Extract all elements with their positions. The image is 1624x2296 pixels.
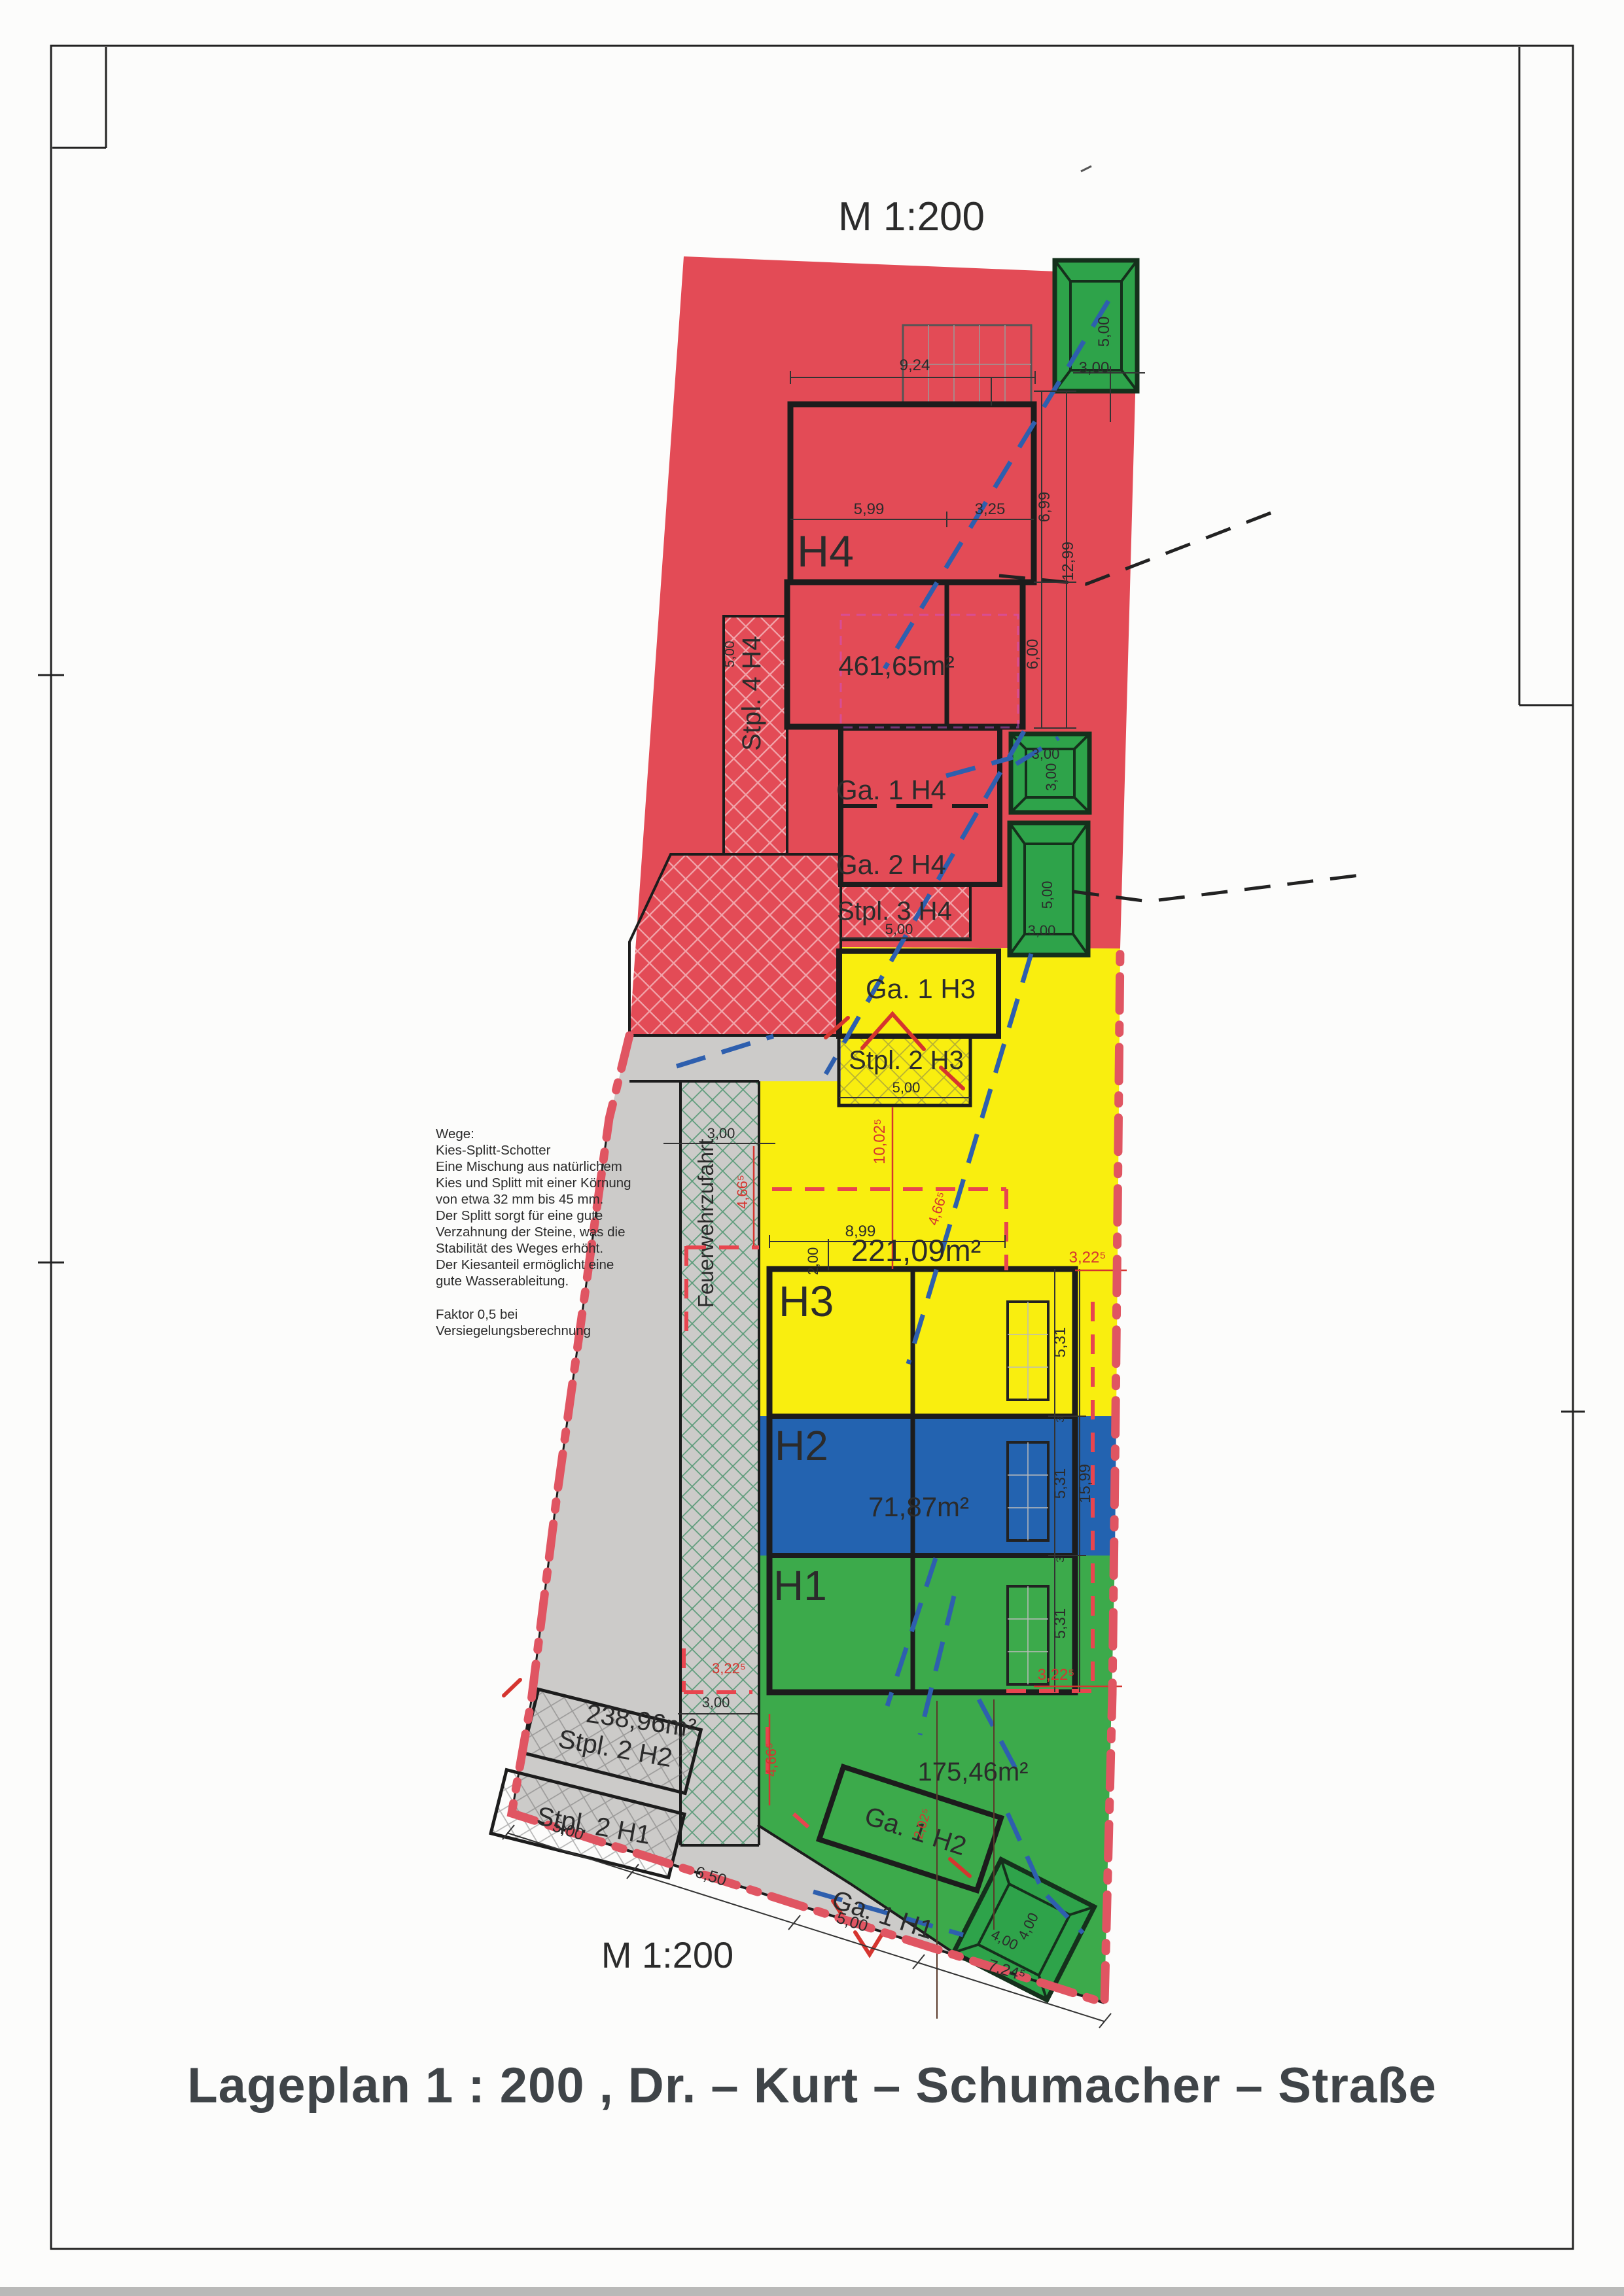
note-line: Eine Mischung aus natürlichem <box>436 1159 622 1174</box>
label-ga2h4: Ga. 2 H4 <box>836 849 946 880</box>
note-line: Kies-Splitt-Schotter <box>436 1143 551 1158</box>
dim-3-22-top: 3,22⁵ <box>1069 1249 1106 1266</box>
dim-3-22-strip: 3,22⁵ <box>712 1660 746 1677</box>
dim-strip-3-00-bottom: 3,00 <box>702 1694 730 1711</box>
note-line: Kies und Splitt mit einer Körnung <box>436 1175 631 1191</box>
dim-tree2-3-00: 3,00 <box>1028 922 1056 939</box>
dim-5-31-a: 5,31 <box>1051 1327 1069 1358</box>
note-line: gute Wasserableitung. <box>436 1274 569 1289</box>
label-feuerwehrzufahrt: Feuerwehrzufahrt <box>694 1139 718 1308</box>
label-h2: H2 <box>775 1422 828 1469</box>
area-h4: 461,65m² <box>838 650 954 681</box>
dim-2-00: 2,00 <box>805 1247 821 1276</box>
page-title: Lageplan 1 : 200 , Dr. – Kurt – Schumach… <box>187 2058 1436 2113</box>
site-plan-drawing: M 1:200 M 1:200 Lageplan 1 : 200 , Dr. –… <box>0 0 1624 2296</box>
dim-15-99: 15,99 <box>1076 1464 1094 1503</box>
area-garden: 175,46m² <box>918 1758 1029 1786</box>
label-stpl4h4: Stpl. 4 H4 <box>737 636 766 751</box>
dim-3-a: 3 <box>1054 1416 1067 1422</box>
dim-4-66-bottom: 4,66⁵ <box>763 1743 779 1777</box>
note-line: Der Kiesanteil ermöglicht eine <box>436 1257 614 1272</box>
note-line: Der Splitt sorgt für eine gute <box>436 1208 603 1223</box>
dim-stpl3h4-5-00: 5,00 <box>885 921 913 937</box>
dim-6-99: 6,99 <box>1036 492 1053 523</box>
dim-9-24: 9,24 <box>900 357 930 374</box>
dim-tree-top-5-00: 5,00 <box>1095 317 1113 347</box>
note-factor-line: Versiegelungsberechnung <box>436 1323 591 1338</box>
dim-12-99: 12,99 <box>1059 542 1077 581</box>
label-ga1h4: Ga. 1 H4 <box>836 774 946 805</box>
label-ga1h3: Ga. 1 H3 <box>866 973 976 1004</box>
lageplan-page: M 1:200 M 1:200 Lageplan 1 : 200 , Dr. –… <box>0 0 1624 2296</box>
scale-label-top: M 1:200 <box>838 194 985 239</box>
label-h1: H1 <box>773 1562 827 1609</box>
dim-10-02: 10,02⁵ <box>871 1119 889 1164</box>
dim-5-99: 5,99 <box>854 500 885 518</box>
note-line: Wege: <box>436 1126 474 1141</box>
label-stpl2h3: Stpl. 2 H3 <box>849 1046 964 1075</box>
dim-5-31-b: 5,31 <box>1051 1469 1069 1499</box>
scan-speck <box>1081 166 1091 171</box>
note-line: Stabilität des Weges erhöht. <box>436 1241 603 1256</box>
area-h2: 71,87m² <box>868 1491 969 1522</box>
dim-stpl4h4-5-00: 5,00 <box>722 641 737 668</box>
dim-tree2-5-00: 5,00 <box>1039 881 1055 909</box>
dim-8-99: 8,99 <box>845 1223 876 1240</box>
dim-stpl2h3-5-00: 5,00 <box>892 1079 921 1096</box>
scale-label-bottom: M 1:200 <box>601 1934 733 1975</box>
note-factor-line: Faktor 0,5 bei <box>436 1307 518 1322</box>
dim-5-31-c: 5,31 <box>1051 1609 1069 1639</box>
label-h3: H3 <box>779 1277 834 1325</box>
dim-6-00: 6,00 <box>1024 639 1042 670</box>
dim-tree1-3-00-v: 3,00 <box>1043 763 1059 791</box>
dim-strip-3-00-top: 3,00 <box>707 1125 735 1141</box>
scan-edge-shadow <box>0 2287 1624 2296</box>
label-h4: H4 <box>797 527 854 576</box>
note-line: von etwa 32 mm bis 45 mm. <box>436 1192 603 1207</box>
dim-strip-4-66: 4,66⁵ <box>734 1175 750 1209</box>
dim-3-b: 3 <box>1054 1556 1067 1562</box>
dim-3-25: 3,25 <box>975 500 1006 518</box>
dim-tree-top-3-00: 3,00 <box>1079 359 1110 377</box>
driveway-hatch-h4 <box>629 854 841 1035</box>
dim-3-22-bottom: 3,22⁵ <box>1038 1666 1075 1684</box>
note-line: Verzahnung der Steine, was die <box>436 1225 625 1240</box>
dim-tree1-3-00: 3,00 <box>1032 746 1060 762</box>
